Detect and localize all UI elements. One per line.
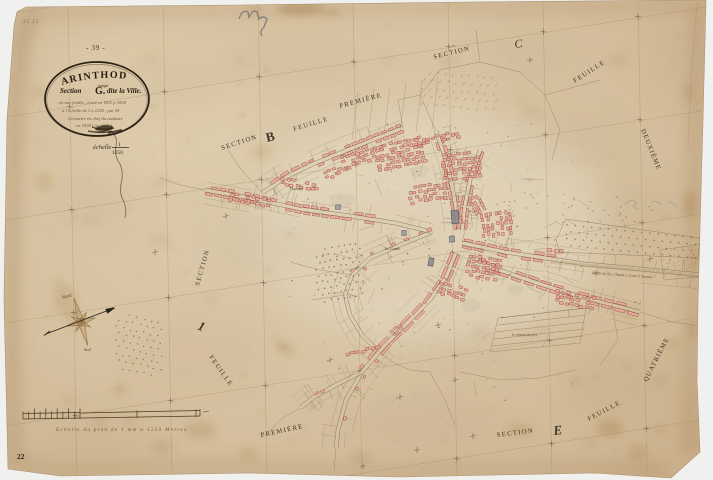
svg-text:1250: 1250 <box>112 150 123 156</box>
svg-text:Guinay: Guinay <box>290 186 303 191</box>
svg-text:G.: G. <box>95 86 106 97</box>
svg-text:22: 22 <box>17 452 25 461</box>
svg-text:dite la Ville.: dite la Ville. <box>107 87 142 95</box>
svg-text:Echelle du plan de 1 mm a 1: Echelle du plan de 1 mm a 1250 Metres <box>55 428 187 433</box>
svg-text:Sud: Sud <box>84 347 92 352</box>
svg-text:- 39 -: - 39 - <box>86 43 105 52</box>
svg-text:ie.: ie. <box>452 43 456 48</box>
svg-text:la Caule: la Caule <box>385 246 400 251</box>
svg-text:22 22: 22 22 <box>23 20 39 25</box>
svg-text:échelle: échelle <box>93 144 112 151</box>
svg-text:1: 1 <box>118 142 121 148</box>
svg-text:le champ du fort: le champ du fort <box>512 333 538 337</box>
svg-text:Geometre en chef du cadastre: Geometre en chef du cadastre <box>68 116 123 121</box>
svg-text:Section: Section <box>60 87 81 95</box>
